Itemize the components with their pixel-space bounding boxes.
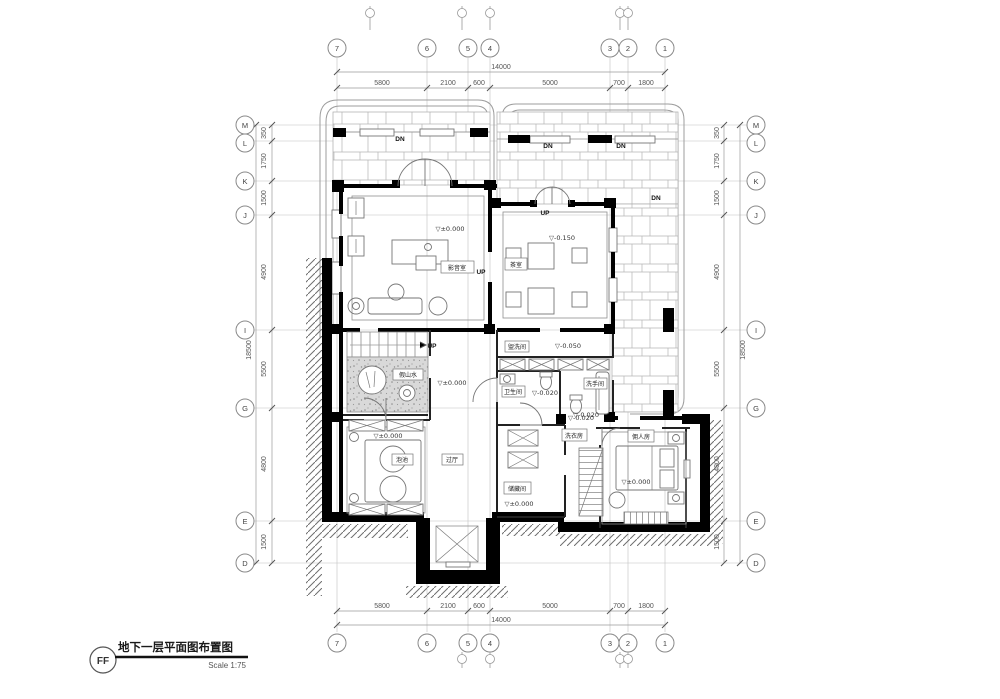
dim-seg: 2100	[440, 80, 456, 87]
up-label: UP	[476, 269, 486, 276]
grid-bubble: K	[753, 177, 758, 186]
dimension-top: 14000 5800 2100 600 5000 700 1800	[334, 64, 668, 91]
title-logo: FF	[97, 656, 109, 667]
elevation-washroom: ▽-0.050	[555, 342, 581, 350]
dim-seg: 2100	[440, 603, 456, 610]
grid-bubbles-right: M L K J I G E D	[747, 116, 765, 572]
room-label-foyer: 过厅	[446, 456, 458, 464]
dim-seg: 5500	[714, 361, 721, 377]
up-label: UP	[540, 210, 550, 217]
foyer: 过厅	[442, 454, 463, 465]
grid-bubble: J	[754, 211, 758, 220]
grid-bubble: 2	[626, 639, 630, 648]
elevation-maid: ▽±0.000	[621, 478, 650, 486]
grid-bubble: 4	[488, 44, 492, 53]
grid-bubble: D	[242, 559, 248, 568]
dim-seg: 4900	[714, 264, 721, 280]
grid-bubble: G	[242, 404, 248, 413]
dim-seg: 1800	[638, 80, 654, 87]
dim-seg: 5800	[374, 603, 390, 610]
grid-bubble: 5	[466, 639, 470, 648]
dim-seg: 5000	[542, 80, 558, 87]
grid-bubble: G	[753, 404, 759, 413]
grid-bubble: 3	[608, 639, 612, 648]
room-label-maid: 佣人房	[632, 433, 650, 441]
dimension-bottom: 14000 5800 2100 600 5000 700 1800	[334, 603, 668, 628]
room-label-spa: 泡池	[396, 456, 408, 464]
grid-bubble: L	[243, 139, 247, 148]
laundry: ▽-0.020 洗衣房	[562, 414, 603, 516]
grid-bubble: K	[242, 177, 247, 186]
dim-seg: 700	[613, 603, 625, 610]
grid-bubble: 1	[663, 639, 667, 648]
grid-bubble: 7	[335, 44, 339, 53]
elevation-tea: ▽-0.150	[549, 234, 575, 242]
dim-total-right: 18500	[740, 340, 747, 360]
dim-seg: 350	[261, 127, 268, 139]
drawing-scale: Scale 1:75	[208, 661, 246, 670]
grid-bubble: 7	[335, 639, 339, 648]
storage-room: 储藏间 ▽±0.000	[504, 403, 542, 508]
grid-bubble: 2	[626, 44, 630, 53]
elevation-media: ▽±0.000	[435, 225, 464, 233]
utility-rooms: 盥洗间 ▽-0.050 卫生间 ▽-0.020 洗手间 ▽-0.020	[500, 341, 609, 419]
hall: ▽±0.000	[437, 378, 497, 402]
dim-seg: 4800	[261, 456, 268, 472]
title-block: FF 地下一层平面图布置图 Scale 1:75	[90, 640, 248, 673]
drawing-title: 地下一层平面图布置图	[118, 640, 233, 654]
dim-seg: 5000	[542, 603, 558, 610]
dim-seg: 5800	[374, 80, 390, 87]
grid-bubble: 4	[488, 639, 492, 648]
floorplan-sheet: 14000 5800 2100 600 5000 700 1800 14000 …	[0, 0, 1000, 699]
dn-label: DN	[651, 195, 661, 202]
cabinet-row	[500, 359, 609, 370]
stair-up-label: UP	[427, 343, 437, 350]
grid-bubble: D	[753, 559, 759, 568]
grid-bubble: E	[242, 517, 247, 526]
dim-seg: 1750	[714, 153, 721, 169]
dim-seg: 600	[473, 80, 485, 87]
room-label-rock-garden: 假山水	[399, 371, 417, 379]
grid-bubbles-top: 7 6 5 4 3 2 1	[328, 39, 674, 57]
dim-seg: 700	[613, 80, 625, 87]
grid-bubble: 3	[608, 44, 612, 53]
stair-main: UP	[347, 332, 437, 357]
dim-seg: 1500	[261, 534, 268, 550]
room-label-storage: 储藏间	[508, 485, 526, 493]
dn-label: DN	[543, 143, 553, 150]
grid-bubble: L	[754, 139, 758, 148]
dim-seg: 1800	[638, 603, 654, 610]
floorplan-drawing: 14000 5800 2100 600 5000 700 1800 14000 …	[0, 0, 1000, 699]
grid-bubble: J	[243, 211, 247, 220]
rock-garden: 假山水	[347, 357, 428, 412]
grid-bubble: 1	[663, 44, 667, 53]
room-label-media: 影音室	[448, 264, 466, 272]
dim-total-bottom: 14000	[491, 617, 511, 624]
grid-bubble: E	[753, 517, 758, 526]
elevation-laundry: ▽-0.020	[568, 414, 594, 422]
elevation-storage: ▽±0.000	[504, 500, 533, 508]
grid-bubble: I	[244, 326, 246, 335]
dim-seg: 5500	[261, 361, 268, 377]
grid-bubbles-bottom: 7 6 5 4 3 2 1	[328, 634, 674, 652]
dim-seg: 1750	[261, 153, 268, 169]
tea-room: ▽-0.150 茶室	[503, 212, 607, 318]
room-label-washroom: 盥洗间	[508, 343, 526, 351]
grid-bubble: 6	[425, 44, 429, 53]
elevation-bathroom: ▽-0.020	[532, 389, 558, 397]
dim-seg: 1500	[261, 190, 268, 206]
dim-total-top: 14000	[491, 64, 511, 71]
dim-total-left: 18500	[246, 340, 253, 360]
room-label-bathroom: 卫生间	[504, 388, 522, 396]
elevation-hall: ▽±0.000	[437, 379, 466, 387]
dim-seg: 600	[473, 603, 485, 610]
dim-seg: 350	[714, 127, 721, 139]
media-room: ▽±0.000 影音室	[348, 196, 484, 320]
grid-bubble: M	[242, 121, 248, 130]
maid-room: 佣人房 ▽±0.000	[602, 428, 686, 524]
room-label-powder: 洗手间	[586, 380, 604, 388]
grid-bubble: 5	[466, 44, 470, 53]
room-label-laundry: 洗衣房	[565, 432, 583, 440]
grid-bubble: 6	[425, 639, 429, 648]
grid-bubble: I	[755, 326, 757, 335]
elevation-spa: ▽±0.000	[373, 432, 402, 440]
dim-seg: 4900	[261, 264, 268, 280]
dn-label: DN	[395, 136, 405, 143]
dim-seg: 1500	[714, 190, 721, 206]
grid-bubble: M	[753, 121, 759, 130]
room-label-tea: 茶室	[510, 261, 522, 269]
elevator	[424, 518, 492, 576]
dn-label: DN	[616, 143, 626, 150]
